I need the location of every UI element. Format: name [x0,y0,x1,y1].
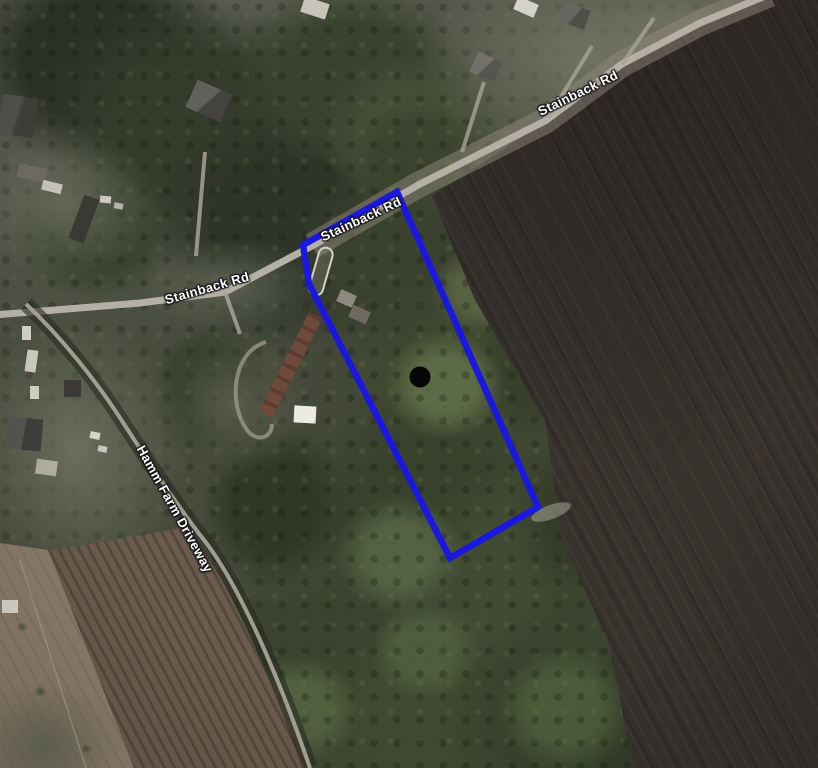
stainback-road-line [0,0,770,315]
fence-line [20,560,86,768]
driveway-spur [225,292,240,334]
driveway-spur [196,152,205,256]
hamm-farm-driveway-line [26,304,310,768]
driveway-tree-shadow [26,304,310,768]
map-overlay-graphics [0,0,818,768]
dirt-loop-path [236,342,272,438]
parcel-center-marker [410,367,431,388]
satellite-map-view: Stainback Rd Stainback Rd Stainback Rd H… [0,0,818,768]
